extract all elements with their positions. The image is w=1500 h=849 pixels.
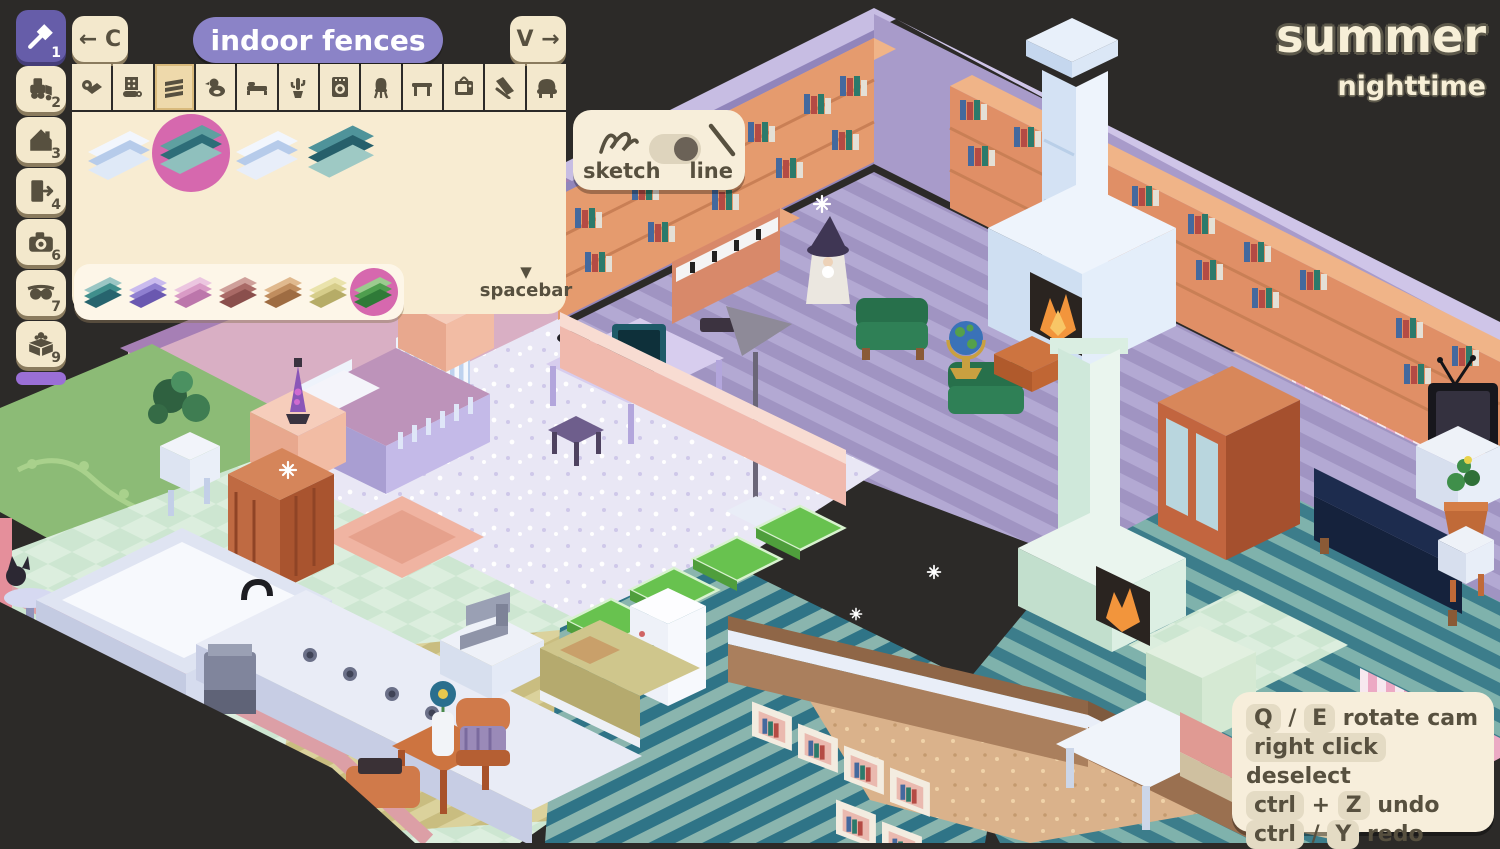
color-variant-tray [74, 264, 404, 320]
tool-exit-door[interactable]: 4 [16, 168, 66, 214]
ramp-icon [493, 75, 517, 99]
tool-decor-box[interactable]: 9 [16, 321, 66, 367]
category-indoor-fences[interactable] [155, 64, 194, 110]
item-fence-teal-selected[interactable] [160, 122, 222, 176]
color-green-selected[interactable] [354, 275, 392, 309]
keycap: ctrl [1246, 791, 1304, 820]
category-beds[interactable] [237, 64, 276, 110]
tv-icon [452, 75, 476, 99]
shortcut-row: ctrl / Y redo [1246, 820, 1480, 849]
category-chairs[interactable] [361, 64, 400, 110]
keycap: Z [1338, 791, 1370, 820]
tool-badge: 2 [51, 95, 61, 111]
table-icon [410, 75, 434, 99]
season-name: summer [1276, 10, 1486, 62]
category-title: indoor fences [193, 17, 443, 63]
toggle-knob [674, 137, 698, 161]
tool-bulldozer[interactable]: 2 [16, 66, 66, 112]
shortcut-row: ctrl + Z undo [1246, 791, 1480, 820]
shortcut-row: Q / E rotate cam [1246, 704, 1480, 733]
duck-icon [204, 75, 228, 99]
spacebar-hint: ▼ spacebar [486, 264, 566, 312]
tool-badge: 9 [51, 350, 61, 366]
tool-sunglasses[interactable]: 7 [16, 270, 66, 316]
forward-category-button[interactable]: V → [510, 16, 566, 62]
color-maroon[interactable] [219, 275, 257, 309]
shortcuts-panel: Q / E rotate cam right click deselect ct… [1232, 692, 1494, 832]
keycap: Y [1327, 820, 1359, 849]
shortcut-action: undo [1377, 793, 1439, 818]
shortcut-action: redo [1367, 822, 1424, 847]
tool-build-hammer[interactable]: 1 [16, 10, 66, 62]
color-tan[interactable] [264, 275, 302, 309]
season-display: summer nighttime [1276, 10, 1486, 104]
washing-machine-icon [328, 75, 352, 99]
category-tables[interactable] [403, 64, 442, 110]
item-fence-light-blue[interactable] [88, 128, 150, 182]
tool-badge: 7 [51, 299, 61, 315]
color-pink[interactable] [174, 275, 212, 309]
time-of-day: nighttime [1276, 70, 1486, 104]
rug-icon [80, 75, 104, 99]
shortcut-action: rotate cam [1343, 706, 1478, 731]
category-rugs[interactable] [72, 64, 111, 110]
item-fence-teal-large[interactable] [308, 122, 374, 180]
item-fence-light-blue-thin[interactable] [236, 128, 298, 182]
wardrobe-right [1158, 366, 1300, 560]
sketch-icon [595, 120, 641, 162]
category-appliances[interactable] [320, 64, 359, 110]
fence-icon [162, 75, 186, 99]
category-sofas[interactable] [527, 64, 566, 110]
color-purple[interactable] [129, 275, 167, 309]
tool-badge: 1 [51, 45, 61, 61]
category-tabs [72, 64, 566, 110]
tool-progress-pill [16, 372, 66, 385]
armchair-icon [534, 75, 558, 99]
draw-mode-panel: sketch line [573, 110, 745, 190]
back-category-button[interactable]: ← C [72, 16, 128, 62]
chevron-down-icon: ▼ [520, 264, 532, 280]
wallpaper-icon [121, 75, 145, 99]
spacebar-label: spacebar [480, 280, 573, 301]
keycap: Q [1246, 704, 1281, 733]
sketch-label: sketch [583, 159, 661, 183]
tool-camera[interactable]: 6 [16, 219, 66, 265]
category-toys[interactable] [196, 64, 235, 110]
category-plants[interactable] [279, 64, 318, 110]
line-label: line [689, 159, 733, 183]
color-teal[interactable] [84, 275, 122, 309]
color-yellow[interactable] [309, 275, 347, 309]
chair-icon [369, 75, 393, 99]
tool-house[interactable]: 3 [16, 117, 66, 163]
category-ramps[interactable] [485, 64, 524, 110]
bed-icon [245, 75, 269, 99]
tool-badge: 6 [51, 248, 61, 264]
keycap: E [1304, 704, 1335, 733]
keycap: ctrl [1246, 820, 1304, 849]
category-wallpaper[interactable] [113, 64, 152, 110]
category-electronics[interactable] [444, 64, 483, 110]
cactus-icon [286, 75, 310, 99]
tool-badge: 3 [51, 146, 61, 162]
shortcut-action: deselect [1246, 764, 1351, 789]
keycap: right click [1246, 733, 1386, 762]
shortcut-row: right click deselect [1246, 733, 1480, 791]
line-icon [707, 122, 737, 158]
tool-badge: 4 [51, 197, 61, 213]
